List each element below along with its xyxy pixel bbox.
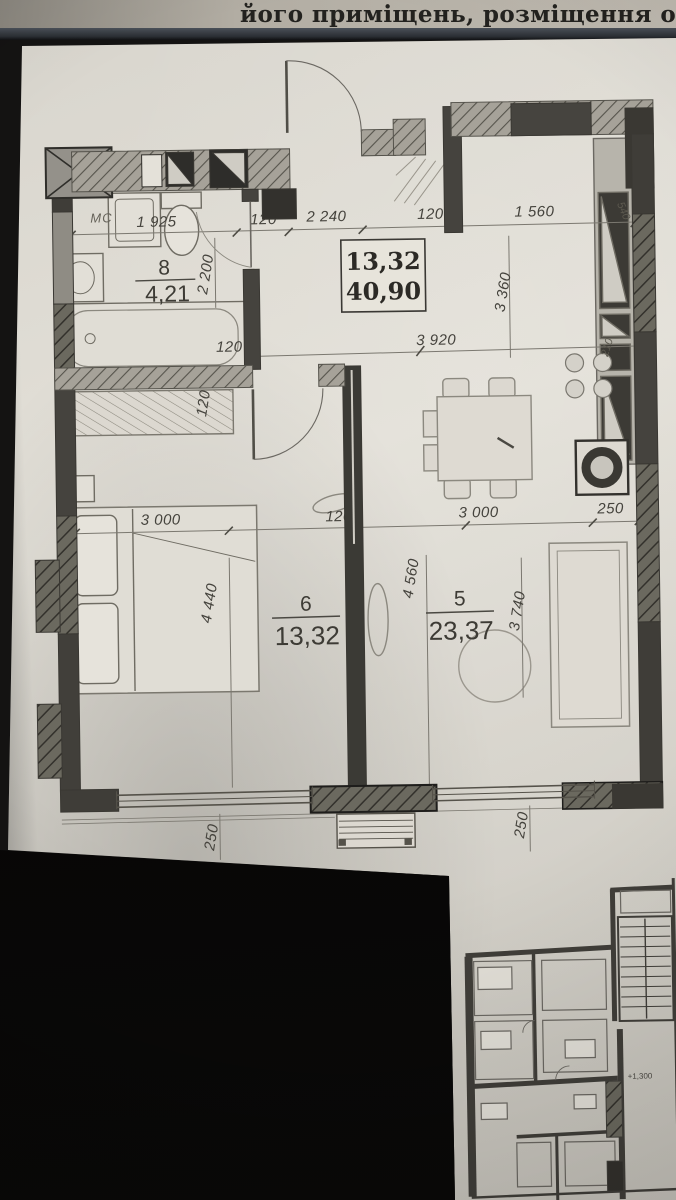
dim-3740: 3 740	[506, 590, 529, 632]
balcony-ac-unit	[337, 813, 415, 848]
dim-top-120b: 120	[417, 206, 444, 223]
pilaster	[35, 560, 60, 632]
dim-mid-250: 250	[596, 500, 624, 517]
dim-120-left-h: 120	[216, 338, 243, 355]
room-5-area: 23,37	[429, 615, 494, 646]
window-bedroom	[116, 787, 312, 810]
bedroom-door	[253, 388, 324, 459]
room-6-number: 6	[300, 593, 312, 616]
bathtub	[58, 301, 247, 374]
area-summary-box: 13,32 40,90	[341, 239, 426, 312]
room-5-label: 5 23,37	[426, 587, 495, 646]
dining-table	[423, 377, 533, 498]
floor-plan-drawing: 1 925 120 2 240 120 1 560 540 2 200 120 …	[0, 0, 676, 1200]
dim-4560: 4 560	[399, 557, 422, 599]
mini-elevation-mark: +1,300	[628, 1071, 653, 1080]
dim-top-1925: 1 925	[136, 213, 176, 231]
dim-2200: 2 200	[194, 253, 217, 296]
entry-door	[286, 60, 361, 133]
washer-drum	[576, 440, 629, 495]
summary-living-area: 13,32	[345, 246, 421, 276]
mini-shaft	[606, 1081, 623, 1137]
summary-total-area: 40,90	[346, 276, 422, 306]
mini-overview-plan: +1,300	[464, 878, 676, 1200]
dim-mid-3000a: 3 000	[141, 511, 181, 529]
room-6-area: 13,32	[275, 620, 340, 651]
room-5-number: 5	[454, 587, 466, 610]
room-8-number: 8	[158, 256, 170, 279]
room-8-label: 8 4,21	[135, 256, 196, 307]
photo-of-floor-plan: його приміщень, розміщення об	[0, 0, 676, 1200]
room-6-label: 6 13,32	[272, 592, 341, 651]
dim-250-br: 250	[511, 810, 532, 840]
mini-stairs	[618, 916, 674, 1021]
dim-250-bl: 250	[201, 823, 222, 853]
dim-3360: 3 360	[492, 271, 515, 313]
dim-mid-3000b: 3 000	[458, 504, 498, 522]
pencil-marks	[394, 157, 445, 206]
dim-3920: 3 920	[416, 332, 456, 350]
dim-top-2240: 2 240	[305, 208, 346, 226]
sofa	[549, 542, 630, 727]
mc-label: МС	[90, 210, 112, 225]
dim-top-1560: 1 560	[514, 203, 554, 221]
door-leaf-oval	[368, 583, 389, 655]
mini-shaft	[607, 1161, 624, 1191]
pilaster	[37, 704, 62, 778]
room-8-area: 4,21	[145, 280, 190, 307]
